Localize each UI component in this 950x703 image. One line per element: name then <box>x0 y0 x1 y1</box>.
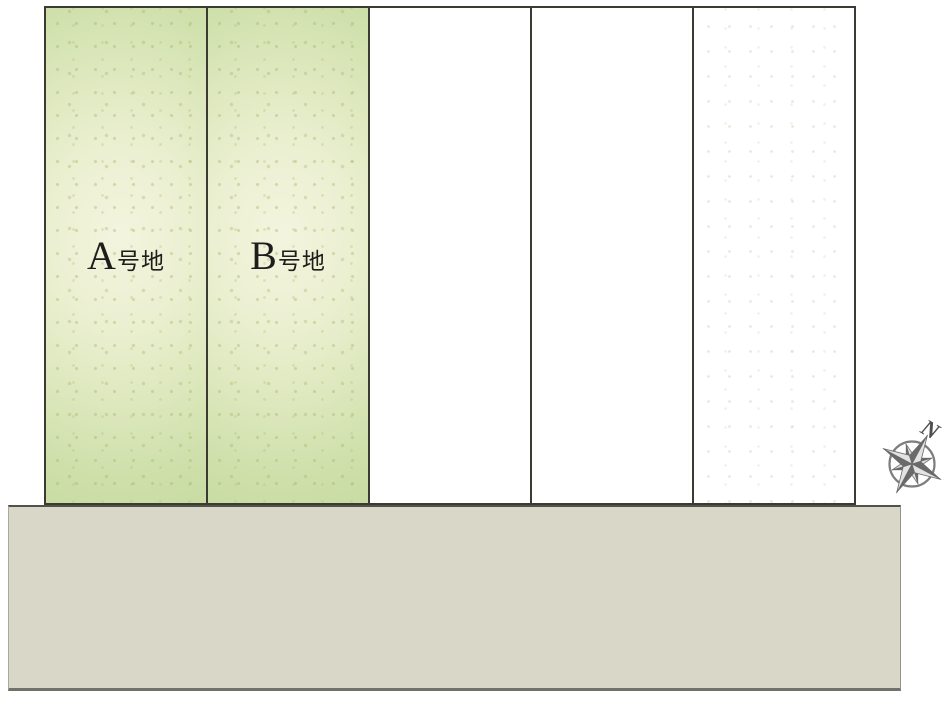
compass-north-label: N <box>916 414 945 445</box>
lot-a: A号地 <box>46 8 206 503</box>
lot-b-suffix: 号地 <box>278 249 326 274</box>
lot-d <box>530 8 692 503</box>
lot-a-letter: A <box>87 233 117 278</box>
lot-b-label: B号地 <box>208 236 368 276</box>
lot-a-suffix: 号地 <box>117 249 165 274</box>
compass-rose-icon: N <box>868 412 950 496</box>
lots-block: A号地 B号地 <box>44 6 856 505</box>
lot-plan-canvas: A号地 B号地 <box>0 0 950 703</box>
lot-b-letter: B <box>250 233 278 278</box>
lot-e <box>692 8 854 503</box>
road <box>8 505 901 691</box>
lot-b: B号地 <box>206 8 368 503</box>
lot-a-label: A号地 <box>46 236 206 276</box>
lot-c <box>368 8 530 503</box>
